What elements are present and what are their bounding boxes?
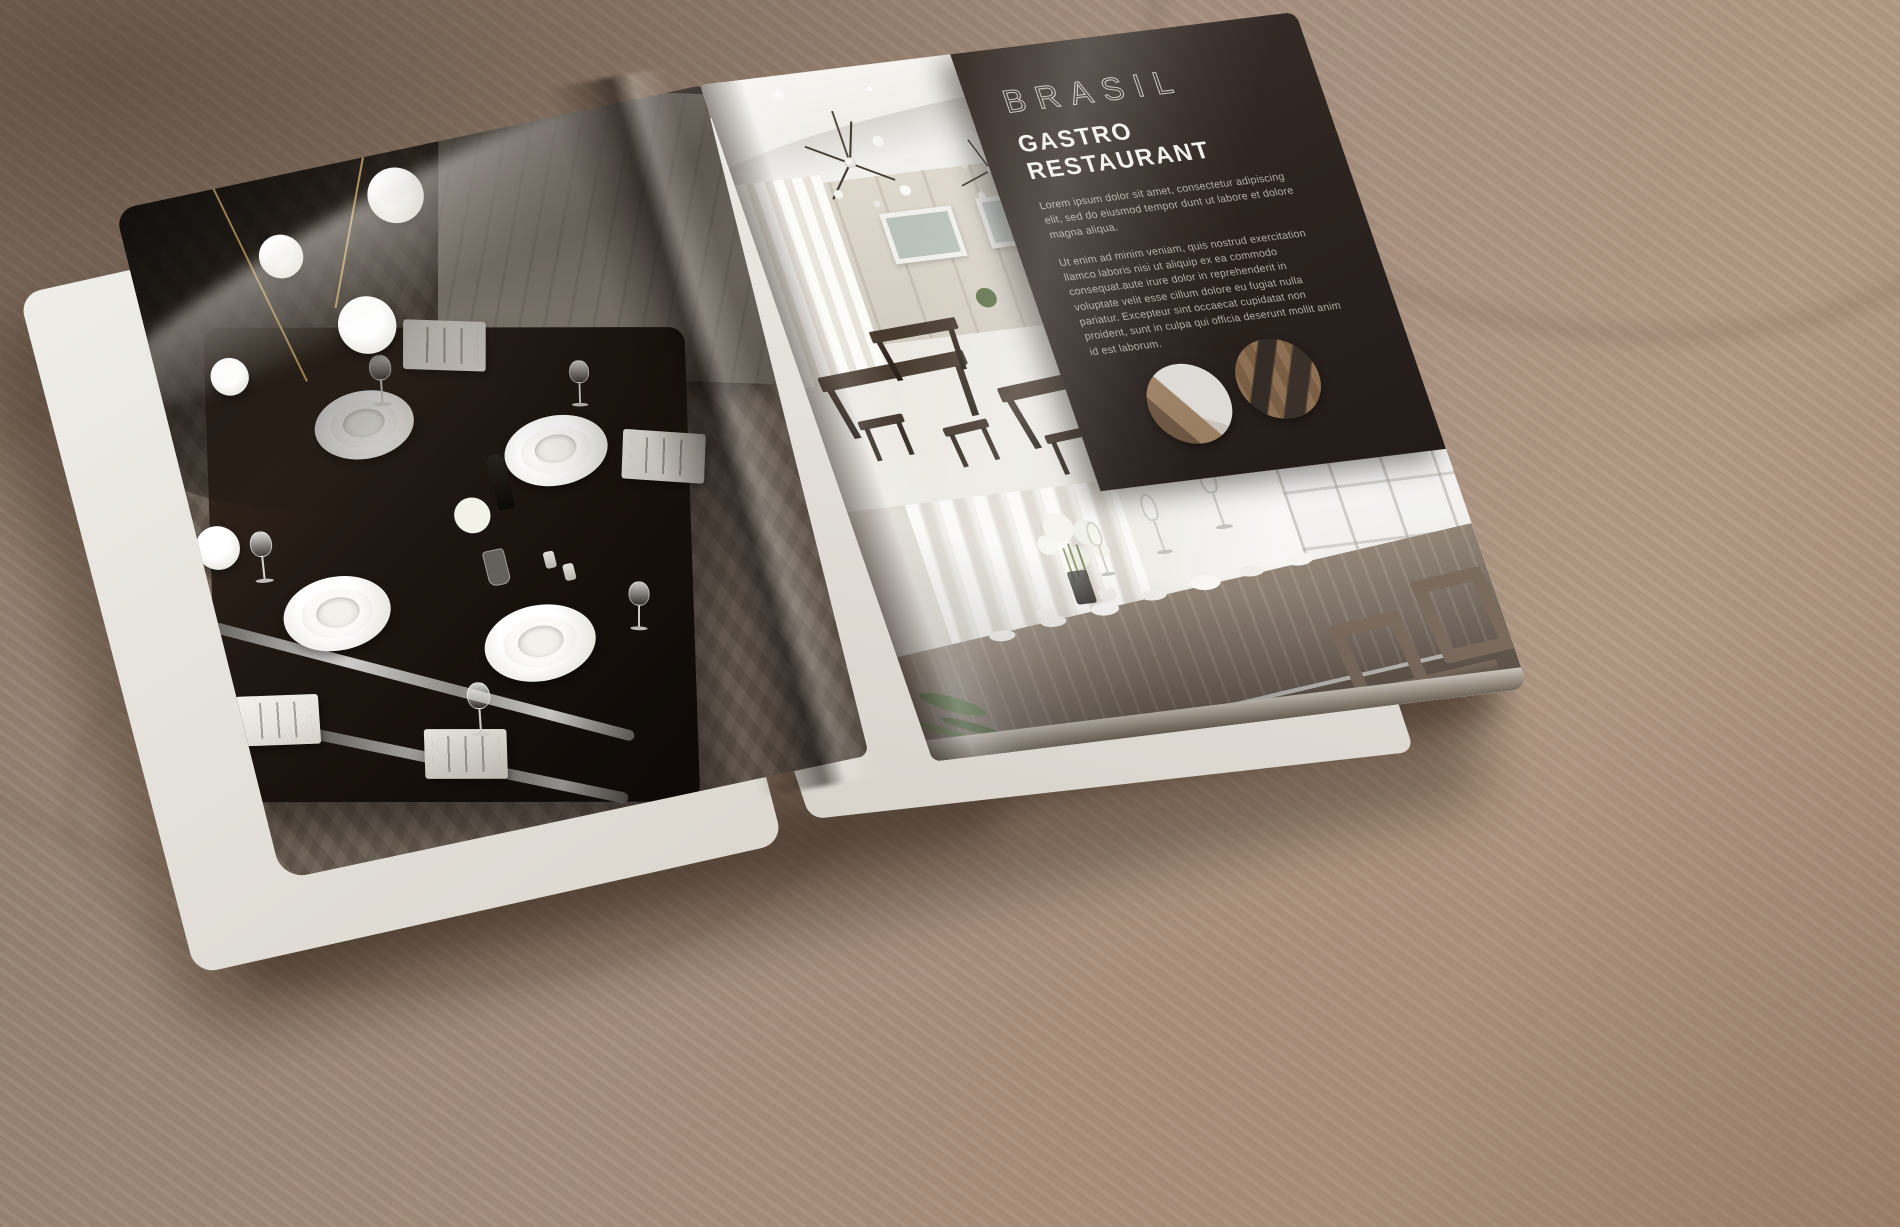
napkin-with-cutlery xyxy=(424,729,508,779)
kicker-title: BRASIL xyxy=(998,49,1298,120)
wine-glass xyxy=(466,682,493,737)
photo-inset-row xyxy=(1135,338,1412,448)
dark-vase xyxy=(1066,570,1097,605)
napkin-with-cutlery xyxy=(403,319,486,371)
wine-glass xyxy=(1137,493,1174,555)
white-carnations xyxy=(450,494,494,536)
photo-circle-wood-chairs xyxy=(1224,334,1333,423)
napkin-with-cutlery xyxy=(621,429,705,484)
body-paragraph: Ut enim ad minim veniam, quis nostrud ex… xyxy=(1057,225,1349,360)
wine-glass xyxy=(628,581,649,631)
desk-surface: BRASIL GASTRO RESTAURANT Lorem ipsum dol… xyxy=(0,0,1900,1227)
napkin-with-cutlery xyxy=(235,694,321,747)
page-title: GASTRO RESTAURANT xyxy=(1014,105,1251,187)
wine-glass xyxy=(368,354,394,406)
photo-circle-table-corner xyxy=(1135,359,1244,448)
wine-glass xyxy=(569,360,591,406)
glass-vase xyxy=(482,548,512,588)
white-carnations xyxy=(1038,511,1078,544)
